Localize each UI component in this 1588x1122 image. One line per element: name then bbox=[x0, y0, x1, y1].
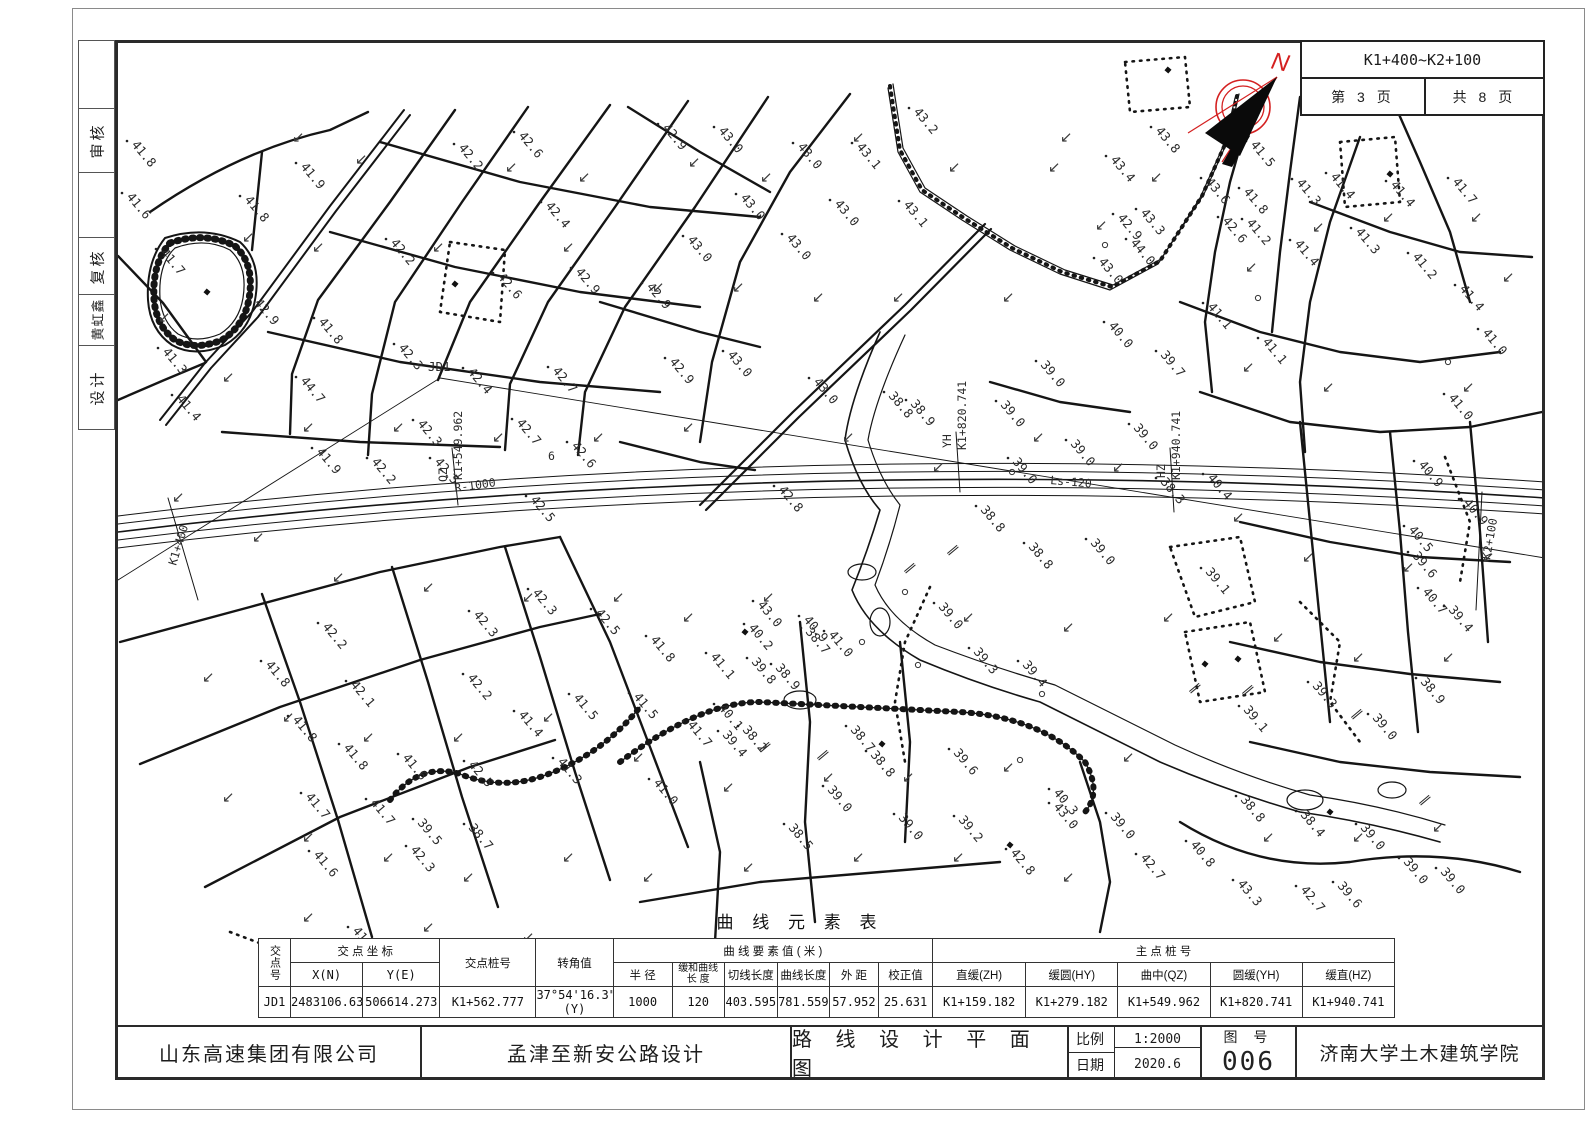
station-range: K1+400~K2+100 bbox=[1302, 42, 1543, 79]
col-yh: 圆缓(YH) bbox=[1210, 963, 1302, 987]
cell-zh: K1+159.182 bbox=[933, 987, 1026, 1018]
scale-date-cell: 比例 1:2000 日期 2020.6 bbox=[1069, 1027, 1202, 1077]
signature-cell-review: 审核 bbox=[79, 109, 114, 173]
scale-value: 1:2000 bbox=[1115, 1032, 1200, 1048]
cell-y: 506614.273 bbox=[363, 987, 440, 1018]
cell-spiral: 120 bbox=[672, 987, 724, 1018]
col-stake: 交点桩号 bbox=[440, 939, 536, 987]
date-label: 日期 bbox=[1069, 1052, 1115, 1077]
figno-label: 图 号 bbox=[1224, 1027, 1274, 1047]
cell-correction: 25.631 bbox=[878, 987, 932, 1018]
col-qz: 曲中(QZ) bbox=[1118, 963, 1210, 987]
project-name: 孟津至新安公路设计 bbox=[422, 1027, 792, 1077]
signature-column: 审核 复核 黄虹鑫 设计 bbox=[78, 40, 115, 430]
signature-cell-blank bbox=[79, 41, 114, 109]
drawing-sheet: ↙↙↙↙↙↙↙↙↙↙↙↙↙↙↙↙↙↙↙↙↙↙↙↙↙↙↙↙↙↙↙↙↙↙↙↙↙↙↙↙… bbox=[0, 0, 1588, 1122]
col-jd-no: 交点号 bbox=[259, 939, 291, 987]
col-y: Y(E) bbox=[363, 963, 440, 987]
cell-qz: K1+549.962 bbox=[1118, 987, 1210, 1018]
col-external: 外 距 bbox=[829, 963, 878, 987]
cell-tangent: 403.595 bbox=[724, 987, 777, 1018]
cell-hz: K1+940.741 bbox=[1302, 987, 1394, 1018]
curve-elements-table: 交点号 交 点 坐 标 交点桩号 转角值 曲 线 要 素 值 ( 米 ) 主 点… bbox=[258, 938, 1395, 1018]
cell-curve-len: 781.559 bbox=[777, 987, 829, 1018]
col-radius: 半 径 bbox=[613, 963, 672, 987]
col-main-points: 主 点 桩 号 bbox=[933, 939, 1395, 963]
signature-label: 设计 bbox=[86, 369, 107, 405]
cell-x: 2483106.636 bbox=[291, 987, 363, 1018]
col-hz: 缓直(HZ) bbox=[1302, 963, 1394, 987]
signature-cell-blank bbox=[79, 173, 114, 239]
col-x: X(N) bbox=[291, 963, 363, 987]
cell-yh: K1+820.741 bbox=[1210, 987, 1302, 1018]
figure-number-cell: 图 号 006 bbox=[1202, 1027, 1297, 1077]
cell-radius: 1000 bbox=[613, 987, 672, 1018]
sheet-header-box: K1+400~K2+100 第 3 页 共 8 页 bbox=[1300, 40, 1545, 116]
cell-jd-no: JD1 bbox=[259, 987, 291, 1018]
page-number: 第 3 页 bbox=[1302, 79, 1426, 114]
col-elements: 曲 线 要 素 值 ( 米 ) bbox=[613, 939, 932, 963]
scale-label: 比例 bbox=[1069, 1027, 1115, 1053]
curve-table-title: 曲 线 元 素 表 bbox=[600, 908, 1000, 933]
signature-cell-check: 复核 bbox=[79, 238, 114, 295]
institute-name: 济南大学土木建筑学院 bbox=[1297, 1027, 1542, 1077]
cell-external: 57.952 bbox=[829, 987, 878, 1018]
col-zh: 直缓(ZH) bbox=[933, 963, 1026, 987]
designer-name: 黄虹鑫 bbox=[87, 299, 106, 341]
col-correction: 校正值 bbox=[878, 963, 932, 987]
signature-label: 审核 bbox=[86, 122, 107, 158]
col-jd-coord: 交 点 坐 标 bbox=[291, 939, 440, 963]
col-curve-len: 曲线长度 bbox=[777, 963, 829, 987]
cell-angle: 37°54'16.3"(Y) bbox=[536, 987, 613, 1018]
table-row: JD1 2483106.636 506614.273 K1+562.777 37… bbox=[259, 987, 1395, 1018]
cell-stake: K1+562.777 bbox=[440, 987, 536, 1018]
col-angle: 转角值 bbox=[536, 939, 613, 987]
col-spiral: 缓和曲线长 度 bbox=[672, 963, 724, 987]
pages-total: 共 8 页 bbox=[1426, 79, 1543, 114]
signature-label: 复核 bbox=[86, 248, 107, 284]
drawing-title: 路 线 设 计 平 面 图 bbox=[792, 1027, 1069, 1077]
col-hy: 缓圆(HY) bbox=[1026, 963, 1118, 987]
figno-value: 006 bbox=[1222, 1047, 1275, 1077]
company-name: 山东高速集团有限公司 bbox=[118, 1027, 422, 1077]
signature-cell-design: 设计 bbox=[79, 346, 114, 429]
cell-hy: K1+279.182 bbox=[1026, 987, 1118, 1018]
col-tangent: 切线长度 bbox=[724, 963, 777, 987]
signature-cell-name: 黄虹鑫 bbox=[79, 295, 114, 345]
date-value: 2020.6 bbox=[1115, 1057, 1200, 1072]
title-block: 山东高速集团有限公司 孟津至新安公路设计 路 线 设 计 平 面 图 比例 1:… bbox=[115, 1025, 1545, 1080]
